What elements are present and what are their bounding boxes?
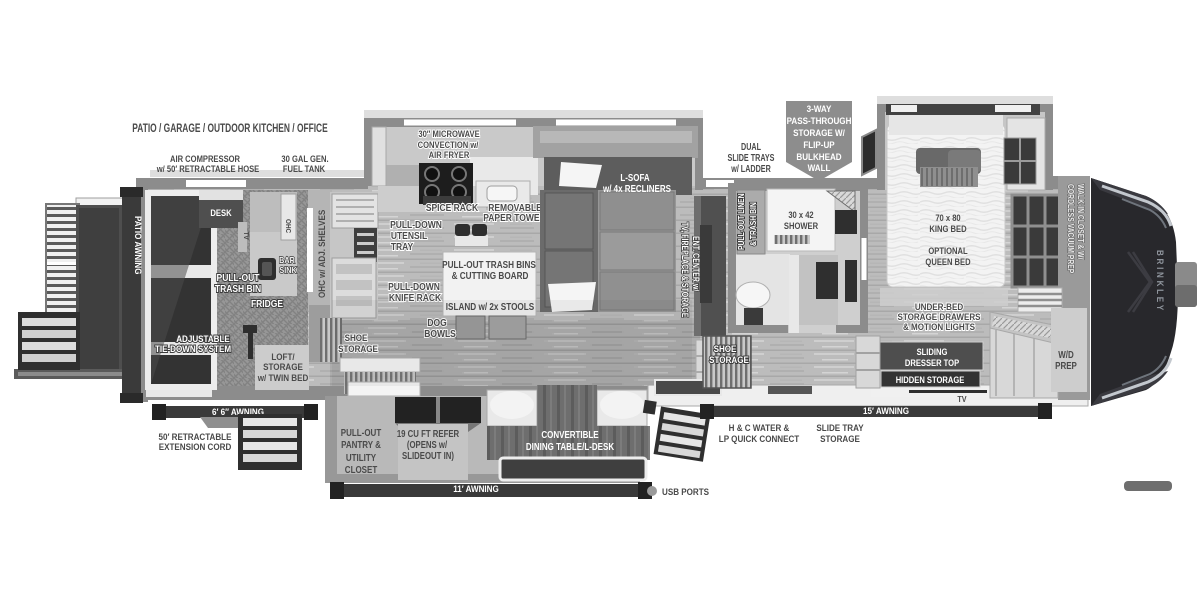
svg-text:PULL-DOWN: PULL-DOWN (388, 281, 440, 292)
svg-text:BAR: BAR (279, 255, 295, 265)
svg-text:STORAGE W/: STORAGE W/ (793, 127, 845, 138)
svg-text:3-WAY: 3-WAY (807, 103, 832, 114)
svg-text:DRESSER TOP: DRESSER TOP (905, 357, 960, 368)
svg-text:TV: TV (957, 394, 967, 404)
svg-text:PASS-THROUGH: PASS-THROUGH (787, 115, 852, 126)
svg-text:BULKHEAD: BULKHEAD (796, 151, 841, 162)
svg-text:CONVERTIBLE: CONVERTIBLE (541, 429, 598, 440)
svg-text:WALK-IN CLOSET & W/: WALK-IN CLOSET & W/ (1076, 184, 1086, 260)
svg-text:(OPENS w/: (OPENS w/ (407, 439, 448, 450)
svg-text:& MOTION LIGHTS: & MOTION LIGHTS (903, 321, 975, 332)
svg-text:PANTRY &: PANTRY & (341, 439, 381, 450)
svg-text:ENT. CENTER w/: ENT. CENTER w/ (691, 236, 701, 292)
svg-text:SLIDE TRAYS: SLIDE TRAYS (728, 152, 775, 163)
svg-text:HIDDEN STORAGE: HIDDEN STORAGE (896, 374, 965, 385)
svg-text:L-SOFA: L-SOFA (620, 172, 650, 183)
svg-text:USB PORTS: USB PORTS (662, 486, 709, 497)
svg-text:STORAGE: STORAGE (709, 354, 749, 365)
svg-text:FLIP-UP: FLIP-UP (803, 139, 834, 150)
svg-text:QUEEN BED: QUEEN BED (925, 256, 970, 267)
svg-text:PULL-DOWN: PULL-DOWN (390, 219, 442, 230)
svg-text:H & C WATER &: H & C WATER & (729, 422, 790, 433)
svg-text:SINK: SINK (279, 265, 297, 275)
svg-text:30 x 42: 30 x 42 (788, 209, 814, 220)
svg-text:CORDLESS VACUUM PREP: CORDLESS VACUUM PREP (1066, 184, 1076, 273)
svg-text:SPICE RACK: SPICE RACK (426, 202, 479, 213)
svg-text:PATIO / GARAGE / OUTDOOR KITCH: PATIO / GARAGE / OUTDOOR KITCHEN / OFFIC… (132, 123, 328, 136)
svg-text:SHOWER: SHOWER (784, 220, 819, 231)
svg-text:30″ MICROWAVE: 30″ MICROWAVE (418, 128, 480, 139)
svg-text:PULL-OUT LINEN: PULL-OUT LINEN (736, 193, 746, 250)
svg-text:UTENSIL: UTENSIL (391, 230, 428, 241)
svg-text:& CUTTING BOARD: & CUTTING BOARD (452, 269, 529, 281)
svg-text:TV: TV (242, 232, 250, 240)
svg-text:w/ 4x RECLINERS: w/ 4x RECLINERS (602, 183, 671, 194)
svg-text:PATIO AWNING: PATIO AWNING (133, 216, 144, 275)
svg-text:TRAY: TRAY (391, 241, 414, 252)
svg-text:OHC: OHC (284, 219, 292, 233)
svg-text:PULL-OUT: PULL-OUT (217, 272, 260, 283)
svg-text:& TRASH BIN: & TRASH BIN (748, 202, 758, 246)
svg-text:15′ AWNING: 15′ AWNING (863, 405, 909, 416)
svg-text:STORAGE: STORAGE (263, 361, 303, 372)
svg-text:FUEL TANK: FUEL TANK (283, 163, 326, 174)
svg-text:PULL-OUT: PULL-OUT (341, 427, 382, 438)
svg-text:UTILITY: UTILITY (346, 452, 376, 463)
svg-text:PREP: PREP (1055, 360, 1077, 371)
svg-text:EXTENSION CORD: EXTENSION CORD (159, 441, 232, 452)
svg-text:SHOE: SHOE (714, 343, 737, 354)
svg-text:OPTIONAL: OPTIONAL (928, 245, 967, 256)
svg-text:OHC w/ ADJ. SHELVES: OHC w/ ADJ. SHELVES (316, 210, 327, 298)
svg-text:SLIDE TRAY: SLIDE TRAY (816, 422, 863, 433)
svg-text:w/ 50′ RETRACTABLE HOSE: w/ 50′ RETRACTABLE HOSE (156, 163, 260, 174)
svg-text:STORAGE: STORAGE (820, 433, 860, 444)
svg-text:DUAL: DUAL (741, 141, 762, 152)
svg-text:SLIDEOUT IN): SLIDEOUT IN) (402, 450, 454, 461)
svg-text:W/D: W/D (1058, 349, 1074, 360)
svg-text:KING BED: KING BED (929, 223, 966, 234)
svg-text:70 x 80: 70 x 80 (935, 212, 961, 223)
svg-text:CLOSET: CLOSET (345, 464, 378, 475)
svg-text:DINING TABLE/L-DESK: DINING TABLE/L-DESK (526, 441, 615, 452)
svg-text:19 CU FT REFER: 19 CU FT REFER (397, 428, 460, 439)
svg-text:PAPER TOWEL: PAPER TOWEL (483, 212, 545, 223)
svg-text:w/ TWIN BED: w/ TWIN BED (257, 372, 309, 383)
svg-text:AIR FRYER: AIR FRYER (429, 149, 470, 160)
svg-text:TRASH BIN: TRASH BIN (215, 283, 261, 294)
svg-text:SLIDING: SLIDING (917, 346, 948, 357)
svg-text:WALL: WALL (808, 162, 831, 173)
svg-text:DESK: DESK (210, 207, 231, 218)
svg-text:LP QUICK CONNECT: LP QUICK CONNECT (719, 433, 800, 444)
svg-text:BRINKLEY: BRINKLEY (1155, 250, 1166, 313)
svg-text:TIE-DOWN SYSTEM: TIE-DOWN SYSTEM (155, 343, 231, 354)
svg-text:11′ AWNING: 11′ AWNING (453, 483, 499, 494)
svg-text:w/ LADDER: w/ LADDER (730, 163, 771, 174)
svg-text:FRIDGE: FRIDGE (251, 298, 283, 309)
